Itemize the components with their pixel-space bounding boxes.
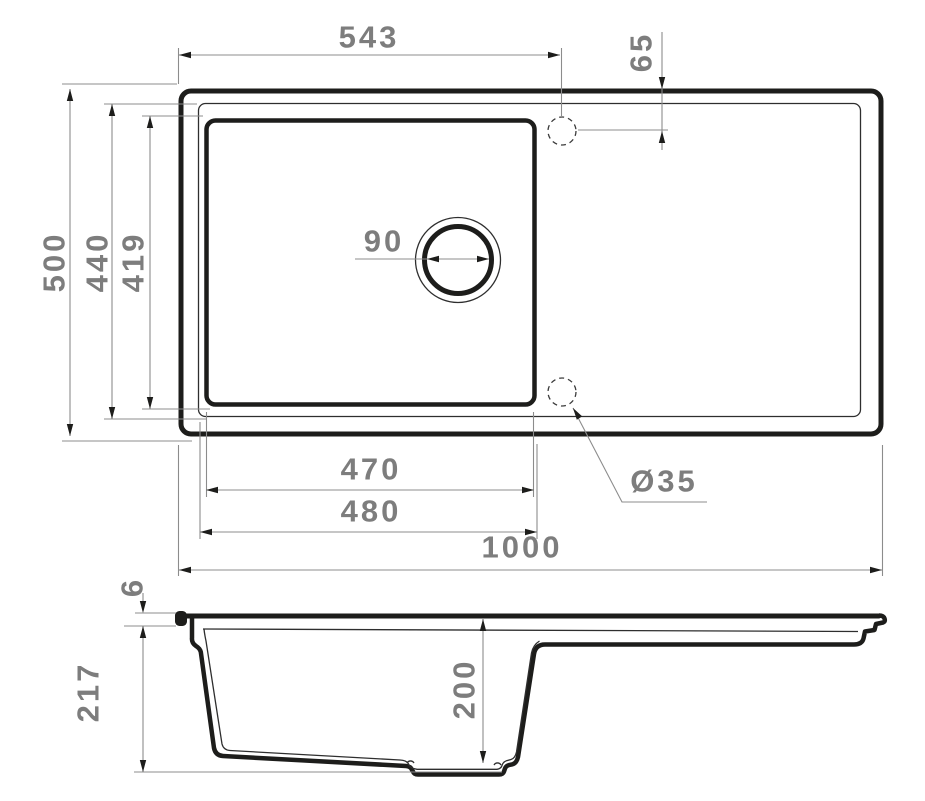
bowl-edge (207, 121, 535, 405)
dim-bowl-inner-depth: 419 (118, 232, 149, 293)
dim-overall-height: 217 (73, 662, 104, 723)
section-inner-surface-line (204, 629, 540, 769)
dim-bowl-cutout-depth: 440 (82, 232, 113, 293)
top-view (181, 91, 881, 434)
dim-faucet-offset-y: 65 (626, 32, 657, 72)
section-profile (192, 616, 885, 775)
dim-faucet-hole-diameter: Ø35 (630, 466, 698, 497)
dim-overall-length: 1000 (482, 532, 563, 563)
section-view (175, 611, 885, 775)
faucet-hole-bottom (548, 378, 576, 406)
section-far-edge-line (203, 629, 858, 632)
dim-bowl-depth: 200 (449, 659, 480, 720)
dim-faucet-offset-x: 543 (339, 22, 400, 53)
dim-bowl-inner-width: 470 (341, 454, 402, 485)
dim-drain-diameter: 90 (364, 226, 404, 257)
section-left-lip (175, 611, 187, 626)
sink-rim-inner-edge (199, 104, 861, 417)
dim-bowl-cutout-width: 480 (341, 496, 402, 527)
drain-recess-shoulder-right (494, 763, 501, 765)
technical-drawing: 543 65 500 440 419 90 470 480 1000 Ø35 6… (0, 0, 925, 801)
dim-overall-depth: 500 (39, 232, 70, 293)
dim-rim-height: 6 (117, 577, 148, 597)
drain-hole-outer-edge (416, 218, 501, 303)
sink-outer-edge (181, 91, 881, 434)
faucet-hole-top (548, 117, 576, 145)
